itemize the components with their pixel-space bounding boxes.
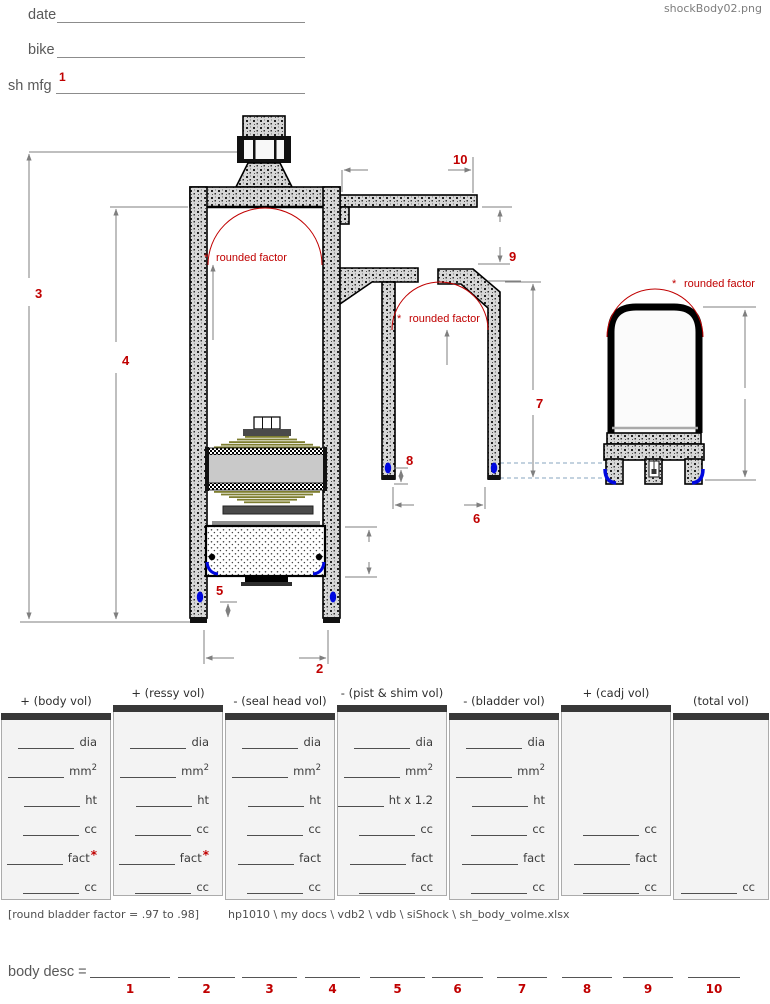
- column-header-bar: [561, 705, 671, 712]
- row-label: cc: [644, 881, 657, 894]
- fill-in-blank: [232, 765, 288, 778]
- date-field-label: date: [28, 7, 56, 23]
- fill-in-blank: [23, 881, 79, 894]
- column-panel: ccfactcc: [561, 712, 671, 896]
- bike-field-blank: [57, 57, 305, 58]
- dimension-9: 9: [478, 207, 521, 281]
- fill-in-blank: [7, 852, 63, 865]
- column-header-bar: [1, 713, 111, 720]
- fill-in-blank: [130, 736, 186, 749]
- fill-in-blank: [462, 852, 518, 865]
- column-header-bar: [113, 705, 223, 712]
- fill-in-blank: [354, 736, 410, 749]
- dim-label-6: 6: [473, 511, 480, 526]
- reservoir-left-wall: [382, 282, 395, 479]
- row-label: dia: [79, 736, 97, 749]
- reservoir-section: [340, 268, 500, 480]
- table-row: fact: [450, 851, 558, 865]
- row-label: cc: [532, 881, 545, 894]
- dimension-5: 5: [216, 583, 237, 617]
- spreadsheet-path: hp1010 \ my docs \ vdb2 \ vdb \ siShock …: [228, 908, 569, 921]
- row-label: dia: [303, 736, 321, 749]
- fill-in-blank: [248, 794, 304, 807]
- column-header-bar: [673, 713, 769, 720]
- dim-label-5: 5: [216, 583, 223, 598]
- mount-stud: [243, 116, 285, 137]
- table-row: cc: [562, 880, 670, 894]
- fill-in-blank: [471, 823, 527, 836]
- body-desc-blank: [562, 964, 612, 978]
- row-label: cc: [84, 823, 97, 836]
- asterisk-icon: *: [204, 252, 209, 264]
- row-label: ht x 1.2: [389, 794, 433, 807]
- fill-in-blank: [583, 823, 639, 836]
- fill-in-blank: [471, 881, 527, 894]
- piston-nut: [254, 417, 280, 429]
- row-label: cc: [742, 881, 755, 894]
- body-desc-number: 3: [242, 982, 297, 996]
- shock-mfg-field-label: sh mfg: [8, 78, 52, 94]
- body-desc-number: 2: [178, 982, 235, 996]
- table-column-seal-head-vol: - (seal head vol) diamm2htccfactcc: [225, 694, 335, 900]
- column-header-bar: [225, 713, 335, 720]
- bladder-base: [604, 444, 704, 460]
- column-header: + (cadj vol): [561, 686, 671, 701]
- body-top-cap: [190, 187, 340, 207]
- fill-in-blank: [472, 794, 528, 807]
- dim-label-10: 10: [453, 152, 467, 167]
- dim-label-3: 3: [35, 286, 42, 301]
- body-desc-blank: [305, 964, 360, 978]
- dimension-4: 4: [110, 207, 188, 619]
- table-row: cc: [450, 822, 558, 836]
- reservoir-bracket: [340, 268, 418, 304]
- table-row: cc: [562, 822, 670, 836]
- body-desc-blank: [370, 964, 425, 978]
- fill-in-blank: [136, 794, 192, 807]
- row-label: ht: [533, 794, 545, 807]
- body-flange: [340, 195, 477, 207]
- bladder-height-dimension: [703, 307, 756, 480]
- fill-in-blank: [583, 881, 639, 894]
- oring-icon: [385, 463, 391, 474]
- dim-label-1: 1: [59, 70, 66, 84]
- body-desc-number: 4: [305, 982, 360, 996]
- fill-in-blank: [135, 881, 191, 894]
- dimension-2: 2: [204, 630, 328, 676]
- table-column-body-vol: + (body vol) diamm2htccfact*cc: [1, 694, 111, 900]
- reservoir-right-wall: [438, 269, 500, 479]
- column-header: - (bladder vol): [449, 694, 559, 709]
- row-label: fact: [635, 852, 657, 865]
- oring-icon: [491, 463, 497, 474]
- row-label: fact: [299, 852, 321, 865]
- table-row: mm2: [338, 764, 446, 778]
- row-label: fact: [68, 852, 90, 865]
- dimension-8: 8: [394, 453, 413, 484]
- body-desc-number: 10: [688, 982, 740, 996]
- row-label: fact: [180, 852, 202, 865]
- fill-in-blank: [247, 823, 303, 836]
- fill-in-blank: [18, 736, 74, 749]
- table-row: mm2: [450, 764, 558, 778]
- body-desc-number: 9: [623, 982, 673, 996]
- seal-head-dimension: [345, 527, 377, 577]
- table-row: cc: [2, 880, 110, 894]
- body-desc-blank: [432, 964, 483, 978]
- bike-field-label: bike: [28, 42, 55, 58]
- table-row: cc: [226, 822, 334, 836]
- fill-in-blank: [238, 852, 294, 865]
- body-desc-number: 6: [432, 982, 483, 996]
- row-label: cc: [532, 823, 545, 836]
- dim-label-9: 9: [509, 249, 516, 264]
- piston-shim-stack: [205, 417, 327, 514]
- row-label: cc: [308, 823, 321, 836]
- table-row: ht x 1.2: [338, 793, 446, 807]
- table-row: fact: [562, 851, 670, 865]
- fill-in-blank: [24, 794, 80, 807]
- row-label: ht: [309, 794, 321, 807]
- fill-in-blank: [8, 765, 64, 778]
- fill-in-blank: [23, 823, 79, 836]
- shock-diagram: * rounded factor * rounded factor * roun…: [0, 0, 770, 685]
- rounded-factor-label: rounded factor: [216, 252, 287, 264]
- column-header: + (ressy vol): [113, 686, 223, 701]
- image-filename: shockBody02.png: [664, 2, 762, 15]
- oring-icon: [197, 592, 203, 603]
- fill-in-blank: [681, 881, 737, 894]
- table-row: dia: [114, 735, 222, 749]
- table-column-bladder-vol: - (bladder vol) diamm2htccfactcc: [449, 694, 559, 900]
- row-label: cc: [196, 823, 209, 836]
- row-label: mm2: [69, 762, 97, 778]
- row-label: cc: [420, 823, 433, 836]
- piston-body: [207, 455, 325, 483]
- table-row: ht: [226, 793, 334, 807]
- fill-in-blank: [338, 794, 384, 807]
- table-row: fact: [338, 851, 446, 865]
- bladder-factor-note: [round bladder factor = .97 to .98]: [8, 908, 199, 921]
- oring-icon: [330, 592, 336, 603]
- table-column-ressy-vol: + (ressy vol) diamm2htccfact*cc: [113, 686, 223, 896]
- table-row: mm2: [114, 764, 222, 778]
- dim-label-4: 4: [122, 353, 130, 368]
- body-desc-blank: [623, 964, 673, 978]
- column-panel: diamm2htccfact*cc: [1, 720, 111, 900]
- table-row: mm2: [2, 764, 110, 778]
- dim-label-2: 2: [316, 661, 323, 676]
- table-row: ht: [450, 793, 558, 807]
- table-column-cadj-vol: + (cadj vol) ccfactcc: [561, 686, 671, 896]
- table-row: cc: [226, 880, 334, 894]
- table-row: ht: [114, 793, 222, 807]
- fill-in-blank: [120, 765, 176, 778]
- table-row: cc: [450, 880, 558, 894]
- table-row: dia: [338, 735, 446, 749]
- seal-head-block: [206, 526, 325, 576]
- body-desc-number: 8: [562, 982, 612, 996]
- column-panel: diamm2htccfactcc: [449, 720, 559, 900]
- fact-asterisk: *: [91, 850, 97, 860]
- row-label: mm2: [517, 762, 545, 778]
- row-label: fact: [523, 852, 545, 865]
- bladder-dome: [611, 307, 699, 433]
- row-label: mm2: [181, 762, 209, 778]
- bladder-level-dashes: [500, 463, 619, 478]
- body-desc-blank: [242, 964, 297, 978]
- fill-in-blank: [135, 823, 191, 836]
- row-label: ht: [197, 794, 209, 807]
- table-column-pist-shim-vol: - (pist & shim vol) diamm2ht x 1.2ccfact…: [337, 686, 447, 896]
- table-row: cc: [2, 822, 110, 836]
- worksheet-page: * rounded factor * rounded factor * roun…: [0, 0, 770, 1004]
- column-panel: diamm2htccfactcc: [225, 720, 335, 900]
- dimension-10: 10: [342, 152, 473, 193]
- row-label: dia: [191, 736, 209, 749]
- row-label: dia: [527, 736, 545, 749]
- body-desc-blank: [178, 964, 235, 978]
- table-row: cc: [338, 822, 446, 836]
- bladder-section: [604, 307, 704, 484]
- fill-in-blank: [119, 852, 175, 865]
- body-desc-blank: [688, 964, 740, 978]
- date-field-blank: [57, 22, 305, 23]
- body-desc-section: body desc = 12345678910: [0, 958, 770, 1004]
- fill-in-blank: [466, 736, 522, 749]
- row-label: dia: [415, 736, 433, 749]
- row-label: ht: [85, 794, 97, 807]
- column-header-bar: [337, 705, 447, 712]
- table-row: cc: [674, 880, 768, 894]
- fact-asterisk: *: [203, 850, 209, 860]
- table-row: ht: [2, 793, 110, 807]
- column-header: - (seal head vol): [225, 694, 335, 709]
- table-row: mm2: [226, 764, 334, 778]
- dimension-7: 7: [505, 282, 543, 477]
- row-label: fact: [411, 852, 433, 865]
- fill-in-blank: [350, 852, 406, 865]
- table-row: fact*: [114, 851, 222, 865]
- dimension-6: 6: [393, 487, 485, 526]
- column-panel: diamm2ht x 1.2ccfactcc: [337, 712, 447, 896]
- asterisk-icon: *: [672, 278, 677, 290]
- row-label: cc: [644, 823, 657, 836]
- body-desc-number: 1: [90, 982, 170, 996]
- fill-in-blank: [242, 736, 298, 749]
- fill-in-blank: [344, 765, 400, 778]
- table-row: fact: [226, 851, 334, 865]
- table-row: cc: [114, 822, 222, 836]
- row-label: cc: [308, 881, 321, 894]
- table-column-total-vol: (total vol) cc: [673, 694, 769, 900]
- column-header-bar: [449, 713, 559, 720]
- dim-label-7: 7: [536, 396, 543, 411]
- body-desc-blank: [497, 964, 547, 978]
- table-row: dia: [450, 735, 558, 749]
- fill-in-blank: [574, 852, 630, 865]
- body-desc-number: 7: [497, 982, 547, 996]
- table-row: cc: [338, 880, 446, 894]
- fill-in-blank: [359, 823, 415, 836]
- body-desc-label: body desc =: [8, 964, 87, 980]
- table-row: fact*: [2, 851, 110, 865]
- column-header: + (body vol): [1, 694, 111, 709]
- row-label: cc: [196, 881, 209, 894]
- column-panel: diamm2htccfact*cc: [113, 712, 223, 896]
- fill-in-blank: [359, 881, 415, 894]
- row-label: cc: [420, 881, 433, 894]
- row-label: mm2: [293, 762, 321, 778]
- rounded-factor-label: rounded factor: [409, 313, 480, 325]
- column-header: - (pist & shim vol): [337, 686, 447, 701]
- row-label: mm2: [405, 762, 433, 778]
- body-desc-blank: [90, 964, 170, 978]
- column-panel: cc: [673, 720, 769, 900]
- dim-label-8: 8: [406, 453, 413, 468]
- shock-mfg-field-blank: [56, 93, 305, 94]
- row-label: cc: [84, 881, 97, 894]
- seal-head: [206, 521, 325, 586]
- fill-in-blank: [456, 765, 512, 778]
- body-desc-number: 5: [370, 982, 425, 996]
- column-header: (total vol): [673, 694, 769, 709]
- table-row: cc: [114, 880, 222, 894]
- table-row: dia: [226, 735, 334, 749]
- fill-in-blank: [247, 881, 303, 894]
- rounded-factor-label: rounded factor: [684, 278, 755, 290]
- asterisk-icon: *: [397, 313, 402, 325]
- table-row: dia: [2, 735, 110, 749]
